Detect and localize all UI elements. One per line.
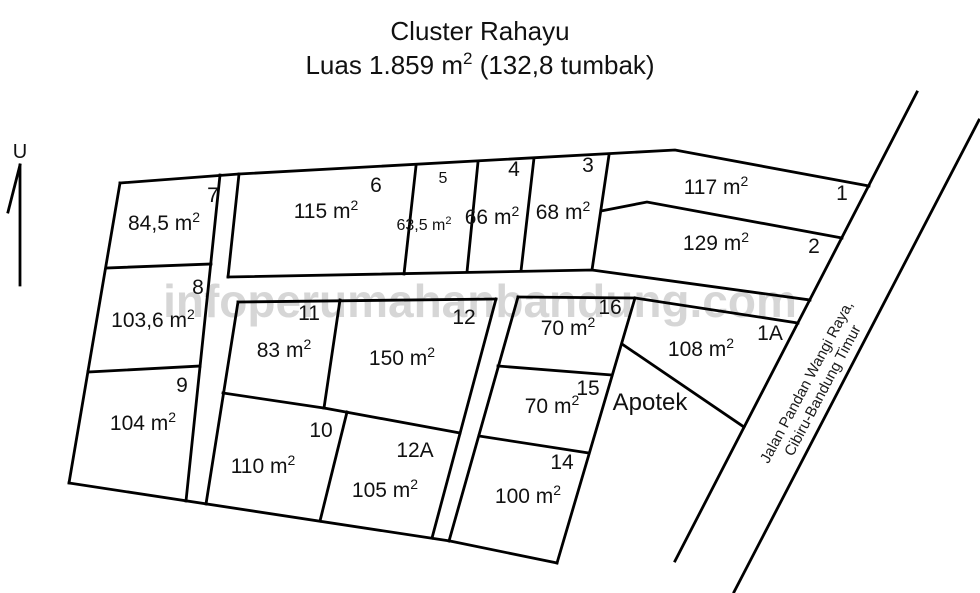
lot-4-number: 4 xyxy=(508,158,520,181)
lot-14-area-value: 100 m xyxy=(495,485,553,508)
lot-12A-area-value: 105 m xyxy=(352,479,410,502)
lot-3-area-value: 68 m xyxy=(536,201,583,224)
lot-9-area: 104 m2 xyxy=(110,409,176,435)
lot-1A-area-superscript: 2 xyxy=(726,335,734,351)
lot-10-area-value: 110 m xyxy=(231,455,288,478)
title-luas-text: Luas 1.859 m xyxy=(305,50,463,80)
lot-4-area-superscript: 2 xyxy=(511,203,519,219)
north-label-u: U xyxy=(13,141,27,163)
lot-1-area-value: 117 m xyxy=(684,176,741,199)
lot-6-area-value: 115 m xyxy=(294,200,351,223)
title-tumbak-text: (132,8 tumbak) xyxy=(472,50,654,80)
lot-1-number: 1 xyxy=(836,182,848,205)
lot-3-area-superscript: 2 xyxy=(582,198,590,214)
apotek-label: Apotek xyxy=(613,389,689,416)
lot-4-area-value: 66 m xyxy=(465,206,512,229)
cluster-rahayu-site-plan: infoperumahanbandung.com Cluster Rahayu … xyxy=(0,0,980,593)
lot-12-area-superscript: 2 xyxy=(427,344,435,360)
lot-7-area: 84,5 m2 xyxy=(128,209,200,235)
divider-lot16-lot15 xyxy=(498,366,612,375)
divider-lot8-lot9 xyxy=(88,366,200,372)
mid-block-east-edge xyxy=(432,299,496,538)
lot-1A-number: 1A xyxy=(757,322,783,345)
lot-10-number: 10 xyxy=(309,419,332,442)
lot-labels: 784,5 m28103,6 m29104 m26115 m2563,5 m24… xyxy=(110,154,848,508)
page-title-line1: Cluster Rahayu xyxy=(390,16,569,46)
lot-2-area: 129 m2 xyxy=(683,229,749,255)
lot-9-number: 9 xyxy=(176,374,188,397)
lot-8-area-value: 103,6 m xyxy=(111,309,187,332)
lot-3-number: 3 xyxy=(582,154,594,177)
lot-8-area-superscript: 2 xyxy=(187,306,195,322)
lot-1-area: 117 m2 xyxy=(684,173,749,199)
lot-1A-area: 108 m2 xyxy=(668,335,734,361)
divider-lot4-lot3 xyxy=(521,158,534,271)
page-title-line2: Luas 1.859 m2 (132,8 tumbak) xyxy=(305,49,654,80)
lot-16-area-superscript: 2 xyxy=(587,314,595,330)
lot-11-area-superscript: 2 xyxy=(303,336,311,352)
lot-3-area: 68 m2 xyxy=(536,198,591,224)
lot-5-number: 5 xyxy=(439,170,448,187)
lot-12A-area-superscript: 2 xyxy=(410,476,418,492)
lot-5-area: 63,5 m2 xyxy=(396,215,451,234)
lot-16-area: 70 m2 xyxy=(541,314,596,340)
lot-12A-area: 105 m2 xyxy=(352,476,418,502)
lot-12-area-value: 150 m xyxy=(369,347,427,370)
lot-12-number: 12 xyxy=(452,306,475,329)
lot-11-area-value: 83 m xyxy=(257,339,304,362)
lot-11-area: 83 m2 xyxy=(257,336,312,362)
lot-1A-area-value: 108 m xyxy=(668,338,726,361)
lot-11-number: 11 xyxy=(298,302,320,325)
lot-6-area-superscript: 2 xyxy=(351,197,359,213)
lot-15-area-value: 70 m xyxy=(525,395,572,418)
lot-1-area-superscript: 2 xyxy=(741,173,749,189)
lot-16-area-value: 70 m xyxy=(541,317,588,340)
lot-12-area: 150 m2 xyxy=(369,344,435,370)
lot-8-area: 103,6 m2 xyxy=(111,306,195,332)
lot-8-number: 8 xyxy=(192,276,204,299)
title-superscript: 2 xyxy=(463,49,472,68)
lot-15-area-superscript: 2 xyxy=(571,392,579,408)
lot-7-area-value: 84,5 m xyxy=(128,212,192,235)
north-arrow-barb xyxy=(8,165,20,212)
outer-top-boundary xyxy=(120,150,869,186)
lot-7-number: 7 xyxy=(207,184,219,207)
lot-16-number: 16 xyxy=(598,296,621,319)
lot-14-area-superscript: 2 xyxy=(553,482,561,498)
lot-6-area: 115 m2 xyxy=(294,197,359,223)
outer-bottom-boundary xyxy=(69,483,557,563)
divider-lot7-lot8 xyxy=(106,264,211,268)
lot-5-area-value: 63,5 m xyxy=(396,217,445,234)
lot-9-area-value: 104 m xyxy=(110,412,168,435)
lot-6-number: 6 xyxy=(370,174,382,197)
lot-10-area: 110 m2 xyxy=(231,452,296,478)
lot-9-area-superscript: 2 xyxy=(168,409,176,425)
lot-4-area: 66 m2 xyxy=(465,203,520,229)
lot-10-area-superscript: 2 xyxy=(288,452,296,468)
lot-2-number: 2 xyxy=(808,235,820,258)
lot-2-area-value: 129 m xyxy=(683,232,741,255)
road-east-line xyxy=(734,120,979,592)
lot-15-area: 70 m2 xyxy=(525,392,580,418)
lot-14-number: 14 xyxy=(550,451,574,474)
lot-15-number: 15 xyxy=(576,377,599,400)
lot-7-area-superscript: 2 xyxy=(192,209,200,225)
lot-12A-number: 12A xyxy=(396,439,433,462)
outer-west-boundary xyxy=(69,183,120,483)
lot6-west-edge xyxy=(228,174,239,277)
site-plan-page: infoperumahanbandung.com Cluster Rahayu … xyxy=(0,0,980,593)
lot-2-area-superscript: 2 xyxy=(741,229,749,245)
lot-5-area-superscript: 2 xyxy=(445,215,451,227)
north-indicator: U xyxy=(13,141,27,163)
divider-lot11-lot10 xyxy=(223,393,324,408)
lot-14-area: 100 m2 xyxy=(495,482,561,508)
